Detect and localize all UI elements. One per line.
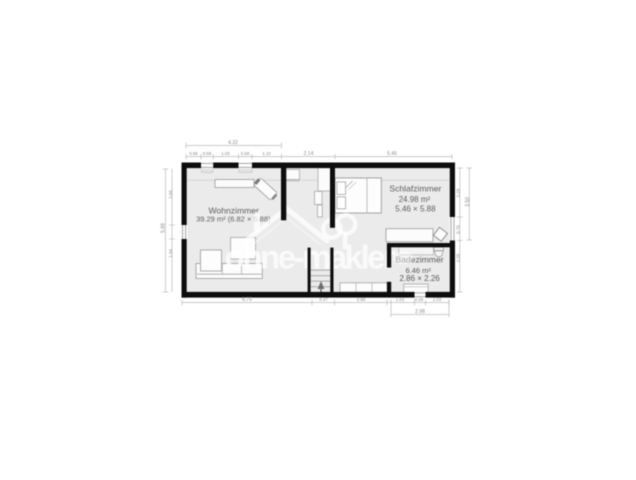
svg-text:24.98 m²: 24.98 m² — [399, 195, 431, 204]
svg-text:3.50: 3.50 — [465, 197, 471, 207]
svg-text:0.68: 0.68 — [415, 297, 424, 302]
svg-text:0.68: 0.68 — [203, 151, 212, 156]
svg-text:5.46: 5.46 — [387, 151, 397, 157]
svg-text:2.28: 2.28 — [456, 188, 461, 197]
svg-text:0.76: 0.76 — [456, 225, 461, 234]
svg-text:6.75: 6.75 — [242, 297, 252, 303]
svg-text:0.47: 0.47 — [319, 297, 328, 302]
svg-text:1.03: 1.03 — [433, 297, 442, 302]
svg-text:5.88: 5.88 — [161, 223, 167, 233]
svg-text:2.14: 2.14 — [304, 151, 314, 157]
svg-text:2.98: 2.98 — [415, 309, 425, 315]
svg-text:Schlafzimmer: Schlafzimmer — [389, 184, 441, 194]
svg-text:0.86: 0.86 — [189, 151, 198, 156]
svg-text:5.46 × 5.88: 5.46 × 5.88 — [395, 205, 436, 214]
svg-text:1.02: 1.02 — [396, 297, 405, 302]
svg-text:2.06: 2.06 — [168, 190, 173, 199]
svg-text:0.68: 0.68 — [241, 151, 250, 156]
svg-text:2.86 × 2.26: 2.86 × 2.26 — [399, 274, 440, 283]
svg-text:1.10: 1.10 — [262, 151, 271, 156]
svg-text:1.00: 1.00 — [221, 151, 230, 156]
svg-text:1.94: 1.94 — [168, 249, 173, 258]
svg-text:4.32: 4.32 — [228, 140, 238, 146]
svg-text:2.26: 2.26 — [456, 253, 461, 262]
svg-text:2.98: 2.98 — [357, 297, 366, 302]
